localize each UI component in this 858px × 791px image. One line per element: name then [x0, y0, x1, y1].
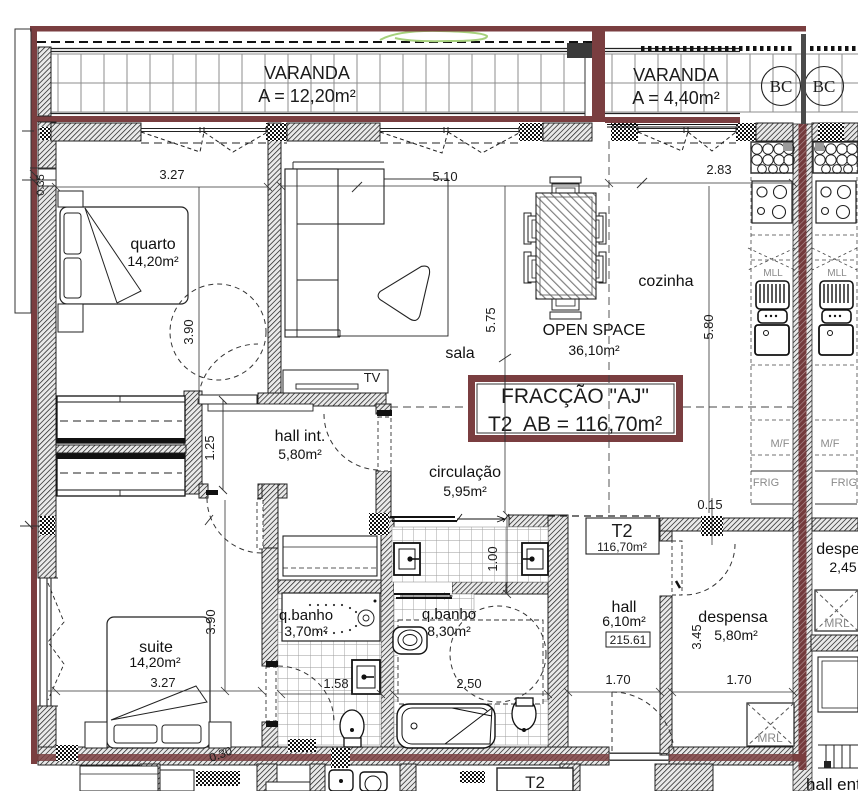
svg-text:FRACÇÃO "AJ": FRACÇÃO "AJ"	[501, 384, 649, 408]
svg-text:sala: sala	[445, 345, 474, 362]
svg-text:FRIG: FRIG	[753, 477, 779, 489]
svg-text:quarto: quarto	[130, 236, 175, 253]
svg-text:despe: despe	[816, 541, 858, 558]
svg-text:5,80m²: 5,80m²	[278, 446, 322, 462]
svg-text:OPEN SPACE: OPEN SPACE	[543, 322, 646, 339]
svg-text:0.15: 0.15	[697, 497, 722, 512]
svg-text:215.61: 215.61	[610, 633, 647, 647]
svg-text:cozinha: cozinha	[638, 273, 693, 290]
svg-text:5.10: 5.10	[432, 169, 457, 184]
svg-text:5,80m²: 5,80m²	[714, 627, 758, 643]
svg-text:M/F: M/F	[821, 438, 840, 450]
svg-text:5,95m²: 5,95m²	[443, 483, 487, 499]
svg-text:36,10m²: 36,10m²	[568, 342, 620, 358]
svg-text:circulação: circulação	[429, 464, 501, 481]
svg-text:MRL: MRL	[757, 731, 783, 745]
svg-text:MLL: MLL	[763, 268, 783, 279]
svg-text:TV: TV	[364, 370, 381, 385]
svg-text:3.90: 3.90	[203, 609, 218, 634]
svg-text:2,45: 2,45	[829, 559, 856, 575]
svg-text:MRL: MRL	[824, 616, 850, 630]
svg-text:6,10m²: 6,10m²	[602, 613, 646, 629]
svg-text:A = 12,20m²: A = 12,20m²	[258, 86, 356, 106]
svg-text:3.27: 3.27	[159, 167, 184, 182]
svg-text:VARANDA: VARANDA	[633, 65, 719, 85]
svg-text:1.00: 1.00	[485, 546, 500, 571]
svg-text:3,70m²: 3,70m²	[284, 623, 328, 639]
svg-text:2.50: 2.50	[456, 676, 481, 691]
svg-text:MLL: MLL	[827, 268, 847, 279]
svg-text:BC: BC	[770, 77, 793, 96]
svg-text:1.58: 1.58	[323, 676, 348, 691]
svg-text:T2: T2	[611, 521, 632, 541]
svg-text:1.70: 1.70	[726, 672, 751, 687]
svg-text:5.75: 5.75	[483, 307, 498, 332]
svg-text:BC: BC	[813, 77, 836, 96]
svg-text:q.banho: q.banho	[422, 606, 476, 623]
svg-text:q.banho: q.banho	[279, 607, 333, 624]
svg-text:hall int.: hall int.	[275, 428, 326, 445]
svg-text:3.45: 3.45	[689, 624, 704, 649]
svg-text:14,20m²: 14,20m²	[127, 253, 179, 269]
svg-text:T2: T2	[525, 773, 545, 791]
svg-text:5.80: 5.80	[701, 314, 716, 339]
svg-text:14,20m²: 14,20m²	[129, 654, 181, 670]
svg-text:3.90: 3.90	[181, 319, 196, 344]
svg-text:3.27: 3.27	[150, 675, 175, 690]
svg-text:M/F: M/F	[771, 438, 790, 450]
svg-text:0.35: 0.35	[35, 174, 47, 195]
svg-text:A = 4,40m²: A = 4,40m²	[632, 88, 720, 108]
svg-text:8,30m²: 8,30m²	[427, 623, 471, 639]
svg-text:FRIG: FRIG	[831, 477, 857, 489]
svg-text:116,70m²: 116,70m²	[597, 540, 647, 554]
svg-text:T2 AB = 116,70m²: T2 AB = 116,70m²	[488, 413, 662, 436]
svg-text:despensa: despensa	[698, 609, 767, 626]
svg-text:hall ent.: hall ent.	[806, 775, 858, 791]
svg-text:2.83: 2.83	[706, 162, 731, 177]
svg-text:1.70: 1.70	[605, 672, 630, 687]
svg-text:1.25: 1.25	[202, 435, 217, 460]
svg-text:VARANDA: VARANDA	[264, 63, 350, 83]
